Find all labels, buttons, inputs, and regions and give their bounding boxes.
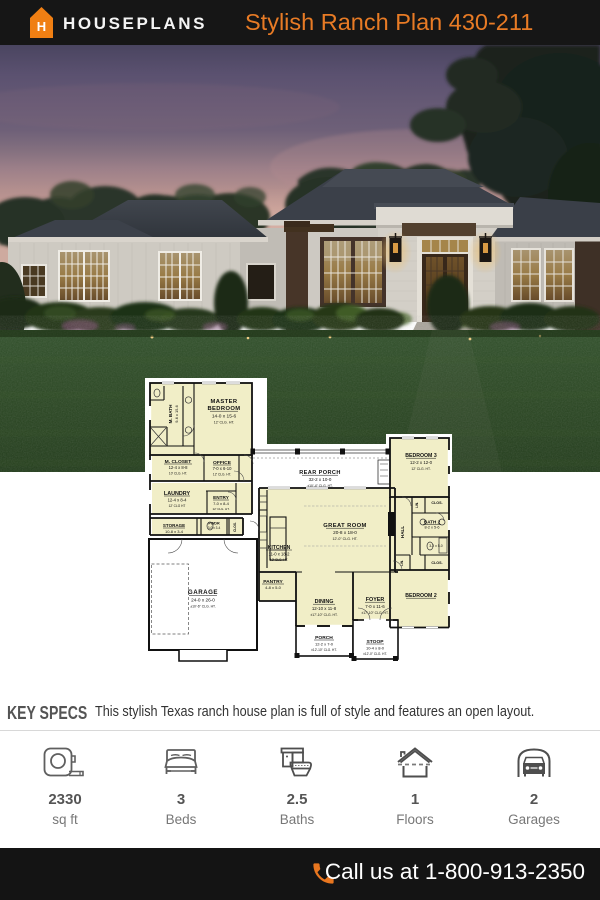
svg-text:H: H (37, 19, 46, 34)
svg-text:12-2 x 12-0: 12-2 x 12-0 (410, 460, 433, 465)
svg-text:12' CLG. HT.: 12' CLG. HT. (214, 421, 235, 425)
svg-text:STORAGE: STORAGE (163, 523, 185, 528)
svg-text:±12'-0" CLG. HT.: ±12'-0" CLG. HT. (363, 652, 387, 656)
svg-text:12'-0" CLG. HT.: 12'-0" CLG. HT. (333, 537, 358, 541)
svg-text:10-8 x 3-4: 10-8 x 3-4 (165, 529, 184, 534)
svg-text:12' CLG. HT.: 12' CLG. HT. (213, 473, 231, 477)
svg-text:LIN.: LIN. (415, 502, 419, 508)
svg-text:20-8 x 18-0: 20-8 x 18-0 (333, 530, 357, 535)
svg-text:M. BATH: M. BATH (168, 404, 173, 423)
svg-text:14-0 x 15-6: 14-0 x 15-6 (212, 414, 237, 420)
svg-text:10' CLG. HT.: 10' CLG. HT. (169, 472, 187, 476)
svg-text:12' CLG HT: 12' CLG HT (169, 504, 186, 508)
svg-text:BATH 2: BATH 2 (424, 520, 441, 525)
svg-text:CLOS.: CLOS. (431, 561, 442, 565)
svg-text:±17'-10" CLG. HT.: ±17'-10" CLG. HT. (361, 611, 388, 615)
svg-text:±12'-10" CLG. HT.: ±12'-10" CLG. HT. (311, 648, 337, 652)
svg-text:8-2 x 5-6: 8-2 x 5-6 (425, 526, 440, 530)
svg-text:12' CLG. HT.: 12' CLG. HT. (270, 558, 288, 562)
svg-text:12-4 x 8-4: 12-4 x 8-4 (168, 498, 188, 503)
svg-text:11-0 x 18-2: 11-0 x 18-2 (269, 552, 291, 557)
svg-text:MASTER: MASTER (211, 399, 238, 405)
svg-text:7-0 x 11-6: 7-0 x 11-6 (365, 604, 385, 609)
svg-text:9-6 x 15-6: 9-6 x 15-6 (174, 405, 179, 423)
svg-text:12' CLG. HT.: 12' CLG. HT. (212, 507, 229, 511)
svg-text:CLOS.: CLOS. (233, 522, 237, 532)
svg-text:12-4 x 8-8: 12-4 x 8-8 (169, 465, 189, 470)
svg-text:7-0 x 6-10: 7-0 x 6-10 (213, 466, 233, 471)
svg-text:ENTRY: ENTRY (213, 495, 230, 500)
svg-text:12-10 x 11-8: 12-10 x 11-8 (312, 606, 337, 611)
svg-text:GARAGE: GARAGE (188, 589, 218, 596)
svg-text:3-0 x 3-4: 3-0 x 3-4 (208, 526, 221, 530)
svg-text:10-4 x 8-0: 10-4 x 8-0 (366, 646, 385, 651)
svg-text:12-2 x 7-0: 12-2 x 7-0 (315, 642, 334, 647)
svg-text:12' CLG. HT.: 12' CLG. HT. (411, 467, 430, 471)
svg-text:4-8 x 5-0: 4-8 x 5-0 (265, 585, 282, 590)
svg-text:3-2 x 5-0: 3-2 x 5-0 (429, 544, 442, 548)
svg-text:±10'-4" CLG. HT.: ±10'-4" CLG. HT. (307, 484, 332, 488)
svg-text:24-0 x 26-0: 24-0 x 26-0 (191, 598, 215, 603)
svg-text:HALL: HALL (400, 526, 405, 538)
svg-text:CLOS.: CLOS. (431, 501, 442, 505)
svg-text:PWDR: PWDR (208, 522, 220, 526)
svg-text:32-2 x 10-0: 32-2 x 10-0 (309, 477, 332, 482)
svg-text:LIN.: LIN. (400, 560, 404, 566)
svg-text:±10'-6" CLG. HT.: ±10'-6" CLG. HT. (190, 605, 215, 609)
svg-text:7-0 x 8-4: 7-0 x 8-4 (213, 501, 230, 506)
svg-text:±17'-10" CLG. HT.: ±17'-10" CLG. HT. (310, 613, 337, 617)
